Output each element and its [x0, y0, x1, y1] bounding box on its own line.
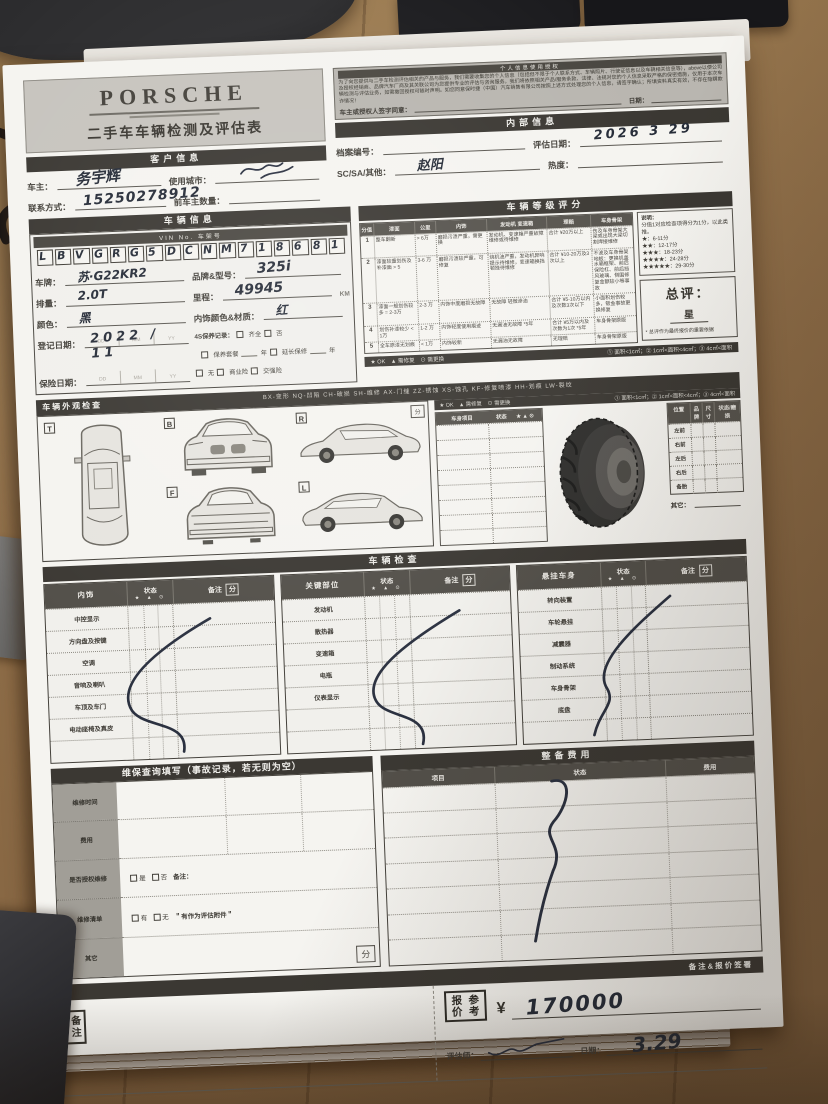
prep-column: 整备费用 项目状态费用 [380, 740, 762, 966]
state-legend-icons: ★ OK ▲ 需修复 ⊙ 需更换 [439, 398, 510, 409]
tire-row: 左前 [668, 420, 741, 437]
model-handwriting: 325i [256, 258, 291, 277]
service-package-label: 保养套餐 [213, 349, 239, 359]
dark-object-bottom-left [0, 909, 77, 1104]
car-rear-view-drawing [177, 481, 283, 549]
color-handwriting: 黑 [77, 308, 90, 326]
quote-reference-box: 报价 参考 [444, 989, 487, 1022]
tire-table-header: 位置品牌尺寸状态/磨损 [667, 400, 740, 423]
vehicle-info-panel: VIN No. 车架号 LBVGRG5DCNM718681 车牌： 苏·G22K… [29, 221, 357, 395]
car-left-view-drawing [298, 482, 428, 539]
notes-area: 备注 [60, 985, 438, 1095]
car-right-view: R [293, 405, 426, 477]
ins-slot-dd: DD [85, 370, 120, 384]
tire-illustration [547, 403, 668, 542]
list-note-label: ＂有作为评估附件＂ [174, 908, 233, 920]
overall-box: 总评： 星 * 总评作为最终报价的重要依据 [639, 276, 737, 341]
mileage-handwriting: 49945 [234, 279, 284, 299]
heat-label: 热度： [548, 158, 574, 171]
grade-table-body: 1整车翻新> 6万磨损污渍严重，需更换发动机、变速箱严重故障维修或待维修合计 ¥… [361, 225, 638, 354]
maintenance-column: 维保查询填写（事故记录，若无则为空） 维修时间 费用 是否授权维修 是 否 备注… [51, 755, 381, 979]
owner-handwriting: 务宇辉 [73, 164, 120, 190]
auth-no-checkbox [151, 874, 158, 881]
vin-char-handwriting: N [202, 242, 213, 256]
heat-field [577, 147, 723, 168]
car-top-view: T [42, 416, 165, 557]
view-label-l: L [298, 481, 309, 492]
tire-row: 左后 [669, 448, 742, 465]
vin-char-handwriting: R [111, 246, 121, 260]
vin-char-handwriting: G [93, 247, 103, 261]
color-label: 颜色： [37, 318, 63, 331]
service-no-label: 否 [276, 328, 283, 337]
tire-position: 备胎 [671, 479, 694, 494]
grade-legend-areas: ① 面积<1c㎡；② 1c㎡<面积<4c㎡；③ 4c㎡<面积 [607, 343, 733, 356]
tire-position: 左后 [669, 451, 692, 466]
header-section: PORSCHE 二手车车辆检测及评估表 客户信息 车主： 务宇辉 使用城市： [23, 52, 732, 214]
assessor-signature [480, 1032, 573, 1062]
assessor-row: 评估师： 日期： 3.29 [446, 1025, 763, 1062]
tire-row: 右前 [669, 434, 742, 451]
footer-date-line: 3.29 [606, 1025, 763, 1055]
tire-table-wrap: 位置品牌尺寸状态/磨损 左前 右前 左后 [666, 399, 745, 536]
plate-handwriting: 苏·G22KR2 [76, 263, 147, 285]
service-package-checkbox [201, 351, 208, 358]
city-scribble-handwriting [234, 157, 301, 184]
maintenance-prep-section: 维保查询填写（事故记录，若无则为空） 维修时间 费用 是否授权维修 是 否 备注… [51, 740, 763, 979]
reg-date-slots: DD MM YY 2022 / 11 [84, 330, 189, 348]
inspection-table-chassis: 悬挂车身 状态★ ▲ ⊙ 备注分 转向装置 车轮悬挂 减震器 制动系统 车身 [516, 555, 754, 744]
vin-char-handwriting: L [38, 249, 46, 263]
file-no-label: 档案编号： [336, 145, 379, 159]
brand-logo: PORSCHE [24, 76, 323, 114]
vin-char-handwriting: 8 [312, 238, 321, 252]
sign-date-line [651, 92, 721, 103]
vin-box: 8 [274, 239, 291, 256]
overall-unit: 星 [670, 305, 709, 324]
prev-owners-field [228, 185, 320, 204]
inspection-section: 内饰 状态★ ▲ ⊙ 备注分 中控显示 方向盘及按键 空调 音响及喇叭 车顶 [43, 555, 754, 763]
brand-block: PORSCHE 二手车车辆检测及评估表 [23, 68, 326, 152]
extended-warranty-unit: 年 [329, 345, 336, 354]
car-diagrams: 分 T B [36, 400, 434, 562]
car-rear-view: F [164, 479, 297, 551]
insurance-date-slots: DD MM YY [85, 368, 190, 386]
view-label-r: R [296, 412, 307, 423]
grade-wrap: 分值漆面公里内饰发动机 变速箱理赔车身骨架 1整车翻新> 6万磨损污渍严重，需更… [359, 208, 738, 355]
disp-handwriting: 2.0T [77, 286, 107, 302]
list-no-label: 无 [162, 914, 169, 921]
quote-label-col1: 报价 [449, 994, 465, 1018]
vin-box: L [37, 249, 54, 266]
inspection-table-interior: 内饰 状态★ ▲ ⊙ 备注分 中控显示 方向盘及按键 空调 音响及喇叭 车顶 [43, 574, 281, 763]
sc-label: SC/SA/其他： [337, 166, 391, 180]
grade-side-column: 说明： 分值1对应检查项得分为1分，以此类推。 ★：6-11分★★：12-17分… [637, 208, 738, 343]
vin-box: 1 [328, 237, 345, 254]
cost-label: 费用 [54, 819, 119, 860]
auth-no-label: 否 [160, 874, 167, 881]
reg-label: 登记日期： [37, 338, 80, 352]
list-yes-checkbox [132, 914, 139, 921]
extended-warranty-checkbox [270, 349, 277, 356]
vin-box: C [183, 243, 200, 260]
vin-char-handwriting: M [221, 241, 233, 255]
grade-table: 分值漆面公里内饰发动机 变速箱理赔车身骨架 1整车翻新> 6万磨损污渍严重，需更… [359, 212, 638, 355]
overall-note: * 总评作为最终报价的重要依据 [646, 326, 734, 336]
exterior-section: 分 T B [36, 387, 745, 561]
ins-compulsory-label: 交强险 [263, 365, 282, 375]
phone-field: 15250278912 [74, 191, 166, 210]
vin-char-handwriting: 7 [239, 241, 248, 255]
exterior-right: ★ OK ▲ 需修复 ⊙ 需更换 ① 面积<1c㎡；② 1c㎡<面积<4c㎡；③… [434, 387, 746, 545]
ins-none-label: 无 [208, 368, 215, 377]
auth-yes-checkbox [130, 875, 137, 882]
vin-box: G [91, 247, 108, 264]
grade-column: 车辆等级评分 分值漆面公里内饰发动机 变速箱理赔车身骨架 1整车翻新> 6万磨损… [358, 191, 739, 382]
tire-other-row: 其它： [670, 496, 744, 509]
mileage-label: 里程： [193, 290, 219, 303]
quote-area: 报价 参考 ¥ 170000 评估师： 日期： [434, 972, 768, 1080]
vin-char-handwriting: G [129, 245, 139, 259]
assessor-signature-line [480, 1037, 573, 1061]
tire-table-body: 左前 右前 左后 右后 备胎 [668, 420, 743, 493]
header-left-column: PORSCHE 二手车车辆检测及评估表 客户信息 车主： 务宇辉 使用城市： [23, 68, 328, 213]
sc-field: 赵阳 [394, 155, 540, 176]
vin-char-handwriting: C [184, 243, 193, 257]
auth-yes-label: 是 [139, 875, 146, 882]
auth-note-label: 备注： [173, 870, 193, 881]
car-right-view-drawing [295, 413, 425, 470]
vin-box: 8 [310, 238, 327, 255]
footer-date-label: 日期： [580, 1044, 604, 1056]
chassis-rows: 转向装置 车轮悬挂 减震器 制动系统 车身骨架 底盘 [518, 580, 752, 721]
photo-scene: PORSCHE 二手车车辆检测及评估表 客户信息 车主： 务宇辉 使用城市： [0, 0, 828, 1104]
quote-row: 报价 参考 ¥ 170000 [444, 978, 761, 1022]
vin-box: 7 [237, 241, 254, 258]
tire-other-label: 其它： [670, 499, 690, 510]
view-label-b: B [164, 417, 175, 428]
grade-star-scale: ★：6-11分★★：12-17分★★★：18-23分★★★★：24-28分★★★… [642, 233, 731, 272]
sign-date-label: 日期： [629, 94, 649, 105]
body-items-table: 车身项目 状态 ★ ▲ ⊙ [435, 407, 548, 545]
interior-handwriting: 红 [274, 300, 287, 318]
key-parts-rows: 发动机 散热器 变速箱 电瓶 仪表显示 [282, 590, 515, 709]
city-field [215, 164, 320, 183]
vin-char-handwriting: V [75, 247, 85, 261]
vin-box: 5 [146, 245, 163, 262]
repair-time-label: 维修时间 [52, 782, 117, 822]
ins-none-checkbox [196, 369, 203, 376]
vin-char-handwriting: 1 [257, 240, 266, 254]
vin-char-handwriting: 8 [275, 239, 284, 253]
view-label-f: F [166, 486, 177, 497]
quote-label-col2: 参考 [466, 993, 482, 1017]
tire-table: 位置品牌尺寸状态/磨损 左前 右前 左后 [666, 399, 744, 494]
currency-symbol: ¥ [496, 999, 506, 1017]
overall-label: 总评： [644, 281, 733, 304]
owner-field: 务宇辉 [56, 171, 161, 190]
ins-compulsory-checkbox [251, 367, 258, 374]
vin-char-handwriting: B [57, 248, 67, 262]
authorized-repair-label: 是否授权维修 [55, 858, 121, 900]
service-label: 4S保养记录： [194, 330, 234, 341]
list-no-checkbox [153, 913, 160, 920]
amount-line: 170000 [511, 983, 761, 1019]
insurance-label: 保险日期： [39, 376, 82, 390]
view-label-t: T [44, 422, 55, 433]
vin-box: N [201, 242, 218, 259]
tire-position: 右后 [670, 465, 693, 480]
car-top-view-drawing [69, 416, 138, 556]
vin-box: V [73, 247, 90, 264]
disp-label: 排量： [36, 297, 62, 310]
vin-box: M [219, 242, 236, 259]
ins-commercial-checkbox [217, 369, 224, 376]
ins-commercial-label: 商业险 [229, 367, 248, 377]
service-no-checkbox [264, 330, 271, 337]
vin-char-handwriting: D [166, 244, 177, 258]
ins-slot-yy: YY [155, 368, 191, 382]
tire-position: 右前 [669, 437, 692, 452]
owner-label: 车主： [27, 180, 53, 193]
phone-label: 联系方式： [28, 200, 71, 214]
service-package-unit: 年 [260, 348, 267, 357]
grade-note-box: 说明： 分值1对应检查项得分为1分，以此类推。 ★：6-11分★★：12-17分… [637, 208, 735, 276]
grade-legend-icons: ★ OK ▲ 需修复 ⊙ 需更换 [370, 355, 444, 366]
vin-char-handwriting: 5 [148, 245, 157, 259]
form-title: 二手车车辆检测及评估表 [26, 114, 325, 146]
amount-handwriting: 170000 [525, 988, 626, 1019]
vin-box: D [164, 244, 181, 261]
maintenance-table: 维修时间 费用 是否授权维修 是 否 备注： 维修清单 有 无 ＂有作为评估附件… [51, 770, 381, 979]
vin-box: 1 [255, 240, 272, 257]
car-front-view: B [162, 410, 295, 482]
vin-box: B [55, 248, 72, 265]
vin-box: 6 [292, 239, 309, 256]
header-right-column: 个人信息使用授权 为了向您提供与二手车检测评估相关的产品与服务，我们需要收集您的… [333, 52, 732, 201]
tire-position: 左前 [668, 423, 691, 438]
assessor-label: 评估师： [446, 1049, 478, 1061]
prep-table: 项目状态费用 [381, 755, 763, 966]
interior-rows: 中控显示 方向盘及按键 空调 音响及喇叭 车顶及车门 电动座椅及真皮 [45, 599, 279, 740]
vin-char-handwriting: 6 [293, 239, 302, 253]
sign-label: 车主或授权人签字同意： [339, 104, 411, 117]
maintenance-score-box: 分 [356, 945, 376, 963]
plate-label: 车牌： [35, 276, 61, 289]
vehicle-info-column: 车辆信息 VIN No. 车架号 LBVGRG5DCNM718681 车牌： 苏… [29, 206, 358, 395]
service-full-label: 齐全 [248, 329, 261, 338]
eval-date-label: 评估日期： [533, 137, 576, 151]
tire-row: 备胎 [671, 476, 744, 493]
vin-box: R [110, 246, 127, 263]
inspection-form: PORSCHE 二手车车辆检测及评估表 客户信息 车主： 务宇辉 使用城市： [2, 36, 783, 1057]
inspection-table-key-parts: 关键部位 状态★ ▲ ⊙ 备注分 发动机 散热器 变速箱 电瓶 仪表显示 [280, 565, 518, 754]
service-full-checkbox [236, 331, 243, 338]
sc-handwriting: 赵阳 [416, 153, 443, 174]
car-front-view-drawing [175, 412, 281, 480]
vehicle-grade-section: 车辆信息 VIN No. 车架号 LBVGRG5DCNM718681 车牌： 苏… [29, 191, 739, 395]
exterior-section-title: 车辆外观检查 [42, 399, 102, 412]
exterior-tables: 车身项目 状态 ★ ▲ ⊙ [435, 399, 746, 545]
car-left-view: L [296, 474, 429, 546]
footer-date-handwriting: 3.29 [631, 1028, 682, 1056]
ins-slot-mm: MM [119, 369, 155, 383]
extended-warranty-label: 延长保修 [282, 346, 308, 356]
tire-row: 右后 [670, 462, 743, 479]
list-yes-label: 有 [141, 915, 148, 922]
vin-box: G [128, 245, 145, 262]
vin-char-handwriting: 1 [330, 237, 339, 251]
